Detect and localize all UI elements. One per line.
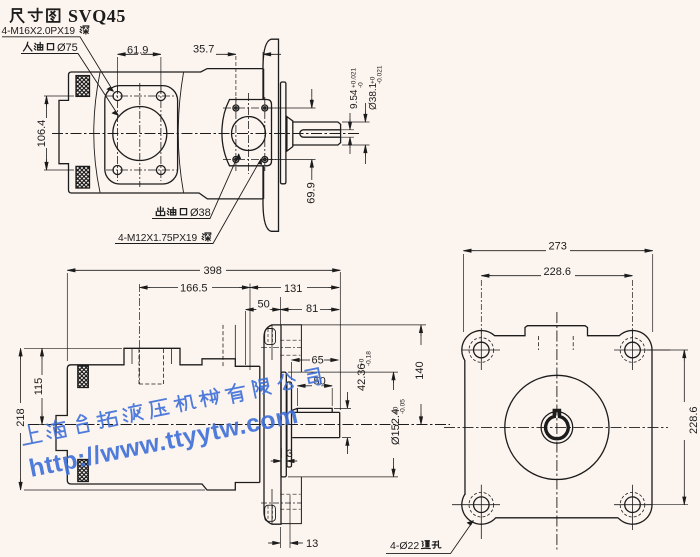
svg-text:-0.05: -0.05 [400,399,407,414]
svg-text:9.54: 9.54 [349,89,360,109]
svg-text:4-Ø22: 4-Ø22 [390,540,419,552]
svg-text:42.36: 42.36 [356,363,368,391]
svg-text:218: 218 [15,408,27,426]
svg-text:35.7: 35.7 [193,44,214,56]
svg-text:3: 3 [287,448,293,460]
svg-text:-0.18: -0.18 [366,351,373,366]
svg-text:+0: +0 [393,406,400,414]
svg-text:4-M12X1.75PX19: 4-M12X1.75PX19 [118,233,197,244]
svg-text:+0: +0 [370,76,377,84]
svg-text:-0.021: -0.021 [377,65,384,84]
svg-text:81: 81 [306,303,318,315]
svg-text:Ø38: Ø38 [190,207,211,219]
svg-text:SVQ45: SVQ45 [68,6,126,26]
svg-text:-0: -0 [358,82,365,88]
svg-text:13: 13 [306,538,318,550]
svg-text:Ø38.1: Ø38.1 [368,82,379,110]
svg-text:273: 273 [549,241,567,253]
svg-text:69.9: 69.9 [306,182,318,203]
svg-text:50: 50 [258,299,270,311]
svg-text:Ø75: Ø75 [57,42,78,54]
svg-text:228.6: 228.6 [688,406,700,434]
svg-text:131: 131 [284,283,302,295]
svg-text:65: 65 [312,355,324,367]
svg-text:4-M16X2.0PX19: 4-M16X2.0PX19 [2,26,76,37]
svg-text:115: 115 [33,378,45,396]
svg-text:228.6: 228.6 [544,266,572,278]
svg-text:166.5: 166.5 [180,283,208,295]
svg-text:140: 140 [414,361,426,379]
svg-text:106.4: 106.4 [36,120,48,148]
svg-text:398: 398 [204,265,222,277]
svg-text:61.9: 61.9 [127,45,148,57]
svg-text:+0.021: +0.021 [351,68,358,88]
svg-text:+0: +0 [359,358,366,366]
